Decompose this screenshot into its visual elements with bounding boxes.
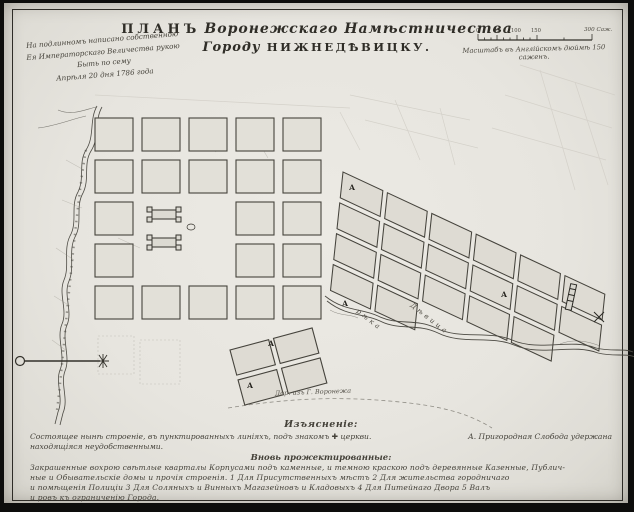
- legend-paragraph-line: ные и Обывательскіе домы и прочія строен…: [30, 474, 612, 483]
- legend-block: Изъясненіе: Состоящее нынѣ строеніе, въ …: [30, 419, 612, 503]
- central-square-buildings: [147, 207, 195, 250]
- legend-line2: находящіяся неудобственными.: [30, 442, 612, 451]
- scanned-map-sheet: 0 50 100 150 300 Саж. А А А А А рѣка Дѣв…: [0, 0, 634, 512]
- block-marker-a: А: [501, 290, 508, 299]
- scale-tick-label: 150: [531, 28, 541, 34]
- compass-circle-icon: [16, 357, 25, 366]
- legend-paragraph-line: Закрашенные вохрою свѣтлые кварталы Корп…: [30, 464, 612, 473]
- legend-subheading: Вновь прожектированные:: [30, 453, 612, 463]
- square-feature: [187, 224, 195, 230]
- title-region-script: Воронежскаго Намѣстничества: [204, 21, 512, 37]
- main-town-grid: [95, 118, 321, 319]
- right-suburb-grid: [331, 172, 605, 413]
- left-river: [38, 106, 102, 425]
- legend-paragraph-line: и ровъ къ ограниченію Города.: [30, 494, 612, 503]
- marsh-marks: [57, 150, 86, 410]
- block-marker-a: А: [342, 299, 349, 308]
- scale-end-label: 300 Саж.: [584, 27, 612, 33]
- legend-line1-left: Состоящее нынѣ строеніе, въ пунктированн…: [30, 432, 371, 441]
- legend-heading: Изъясненіе:: [30, 419, 612, 430]
- title-city-word: Городу: [202, 40, 260, 55]
- compass-star-icon: [97, 354, 109, 368]
- block-marker-a: А: [247, 381, 254, 390]
- legend-paragraph-line: и помѣщенія Полиціи 3 Для Соляныхъ и Вин…: [30, 484, 612, 493]
- legend-line1-right: А. Пригородная Слобода удержана: [468, 432, 612, 441]
- block-marker-a: А: [349, 183, 356, 192]
- title-city-name: НИЖНЕДѢВИЦКУ.: [267, 40, 432, 54]
- orientation-line: [16, 354, 110, 368]
- block-marker-a: А: [268, 339, 275, 348]
